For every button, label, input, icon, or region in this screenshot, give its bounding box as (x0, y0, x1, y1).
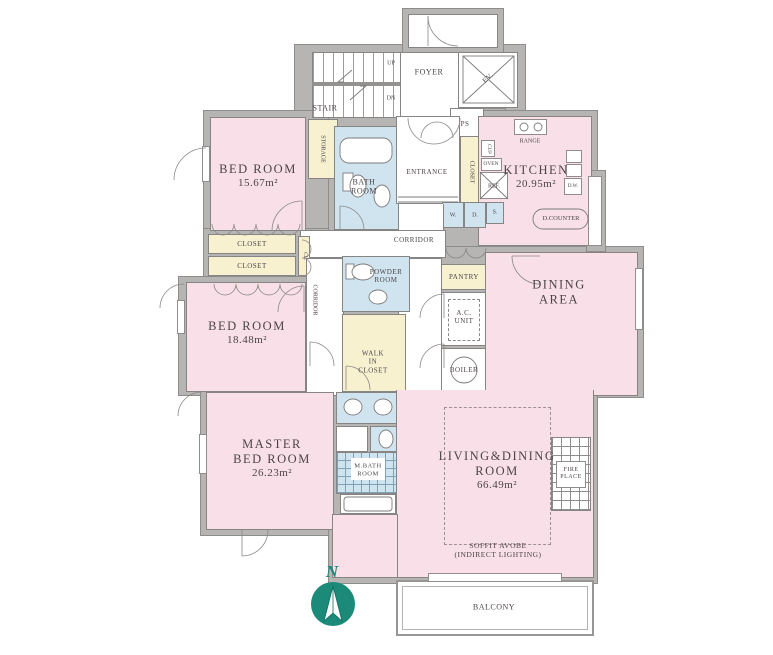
balcony-label: BALCONY (473, 602, 515, 611)
master-bedroom-label: MASTER BED ROOM 26.23m² (233, 437, 311, 479)
mbath-tub (340, 494, 396, 514)
range-label: RANGE (520, 138, 541, 145)
stair-label: STAIR (313, 103, 338, 112)
sink-label: S. (493, 209, 498, 216)
storage-label: STORAGE (318, 135, 325, 163)
mbath-label: M.BATH ROOM (354, 462, 381, 477)
mbath-door-area (336, 426, 368, 452)
window-dining-right (635, 268, 643, 330)
soffit-label: SOFFIT AVOBE (INDIRECT LIGHTING) (454, 542, 541, 560)
walkin-label: WALK IN CLOSET (358, 350, 387, 375)
compass (311, 582, 355, 626)
cl-label: CL. (301, 252, 307, 260)
foyer-label: FOYER (415, 67, 444, 76)
window-bedroom2-left (177, 300, 185, 334)
floor-plan: STAIR UP DN FOYER EV. PS ENTRANCE CLOSET… (0, 0, 773, 655)
entrance-label: ENTRANCE (406, 168, 447, 176)
kitchen-cabinet-1 (566, 150, 582, 163)
vestibule (408, 14, 498, 48)
living-room-patch (332, 514, 398, 578)
fireplace-label: FIRE PLACE (560, 467, 582, 481)
range-counter (514, 119, 547, 135)
dining-room (485, 252, 638, 396)
dining-label: DINING AREA (532, 277, 585, 307)
corridor-label: CORRIDOR (394, 236, 434, 244)
bay-window (588, 176, 602, 246)
oven-label: OVEN (483, 161, 498, 167)
bedroom1-label: BED ROOM 15.67m² (219, 162, 297, 190)
ps-label: PS (461, 120, 470, 128)
bathroom-label: BATH ROOM (351, 178, 377, 197)
corridor-left (306, 258, 344, 396)
living-label: LIVING&DINING ROOM 66.49m² (439, 449, 556, 491)
closet2-label: CLOSET (237, 262, 266, 270)
dcounter-label: D.COUNTER (542, 215, 579, 223)
north-label: N (326, 562, 338, 582)
pantry-label: PANTRY (449, 273, 479, 281)
bedroom2-label: BED ROOM 18.48m² (208, 319, 286, 347)
refrigerator-label: REF. (488, 183, 500, 190)
up-label: UP (387, 60, 395, 67)
dryer-label: D. (472, 212, 478, 219)
ac-unit-label: A.C. UNIT (455, 309, 474, 326)
cupboard-label: CUP (485, 144, 491, 154)
washer-label: W. (450, 212, 457, 219)
window-bedroom1-left (202, 146, 210, 182)
window-living-bottom (428, 573, 562, 582)
dishwasher-label: D.W. (568, 184, 578, 190)
kitchen-label: KITCHEN 20.95m² (503, 163, 568, 191)
entry-closet-label: CLOSET (467, 161, 474, 184)
window-master-left (199, 434, 207, 474)
corridor-v-label: CORRIDOR (310, 284, 317, 315)
closet1-label: CLOSET (237, 240, 266, 248)
mbath-vanity (336, 392, 400, 424)
stair-rail (312, 82, 402, 86)
entrance-room (396, 116, 460, 204)
powder-label: POWDER ROOM (370, 268, 403, 285)
boiler-label: BOILER (450, 366, 478, 374)
dn-label: DN (387, 95, 396, 102)
